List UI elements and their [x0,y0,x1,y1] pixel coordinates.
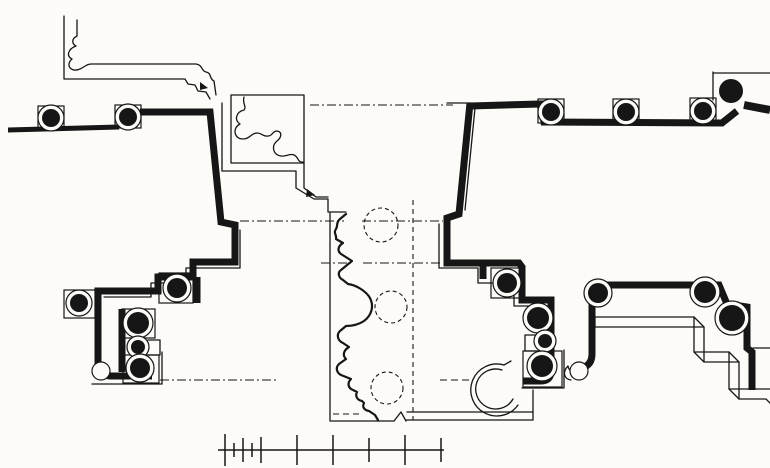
molding-outline-path [330,213,394,421]
column-ring [570,362,588,380]
column-shaft [167,278,187,298]
thick-wall-path [592,285,752,390]
column-shaft [527,307,549,329]
thin-outline-layer [64,16,770,421]
molding-outline-path [222,103,346,212]
molding-outline-path [148,340,160,355]
column-shaft [538,334,552,348]
column-shaft [531,355,553,377]
column-shaft [497,273,517,293]
molding-outline-path [729,389,739,399]
molding-outline-path [394,412,406,421]
thick-wall-path [8,127,119,130]
column-shaft [42,109,60,127]
molding-outline-path [64,16,210,99]
molding-outline-path [476,369,513,409]
floor-plan-svg [0,0,770,468]
dashed-shaft-circle [375,291,407,323]
column-shaft [127,312,149,334]
architectural-plan-figure [0,0,770,468]
column-shaft [694,281,716,303]
molding-outline-path [504,361,511,365]
scale-bar [218,434,444,466]
molding-outline-path [335,214,378,420]
column-shaft [588,283,608,303]
column-shaft-solid [719,79,743,103]
dashed-shaft-circle [371,372,403,404]
column-shaft [131,340,145,354]
column-shaft [542,103,560,121]
molding-outline-path [471,364,518,416]
thick-wall-layer [8,103,770,390]
page-background [0,0,770,468]
molding-outline-path [69,20,216,95]
column-ring [92,362,110,380]
column-shaft [617,103,635,121]
molding-outline-path [231,95,304,163]
molding-outline-path [694,352,704,362]
column-shaft [130,358,150,378]
column-shaft [119,108,137,126]
column-shaft [719,305,745,331]
molding-outline-path [235,97,304,162]
dashed-guide-layer [160,95,469,420]
molding-outline-path [729,352,739,362]
section-triangle-mark [200,82,208,90]
molding-outline-path [694,317,704,327]
dashed-shaft-circle [364,208,398,242]
column-shaft [70,294,88,312]
column-shaft [694,102,712,120]
thick-wall-path [744,105,770,110]
